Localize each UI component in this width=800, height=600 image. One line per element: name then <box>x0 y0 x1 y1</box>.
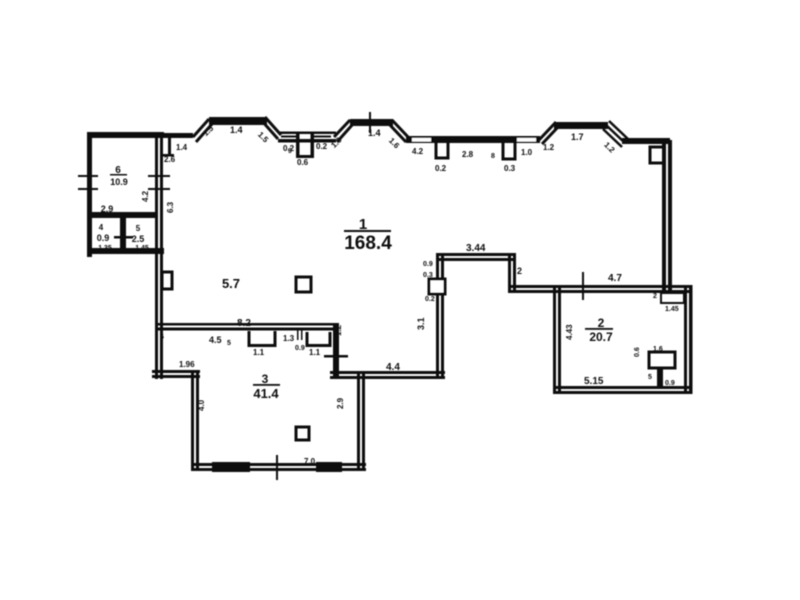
svg-text:41.4: 41.4 <box>253 386 279 401</box>
svg-text:4.7: 4.7 <box>608 273 622 284</box>
svg-text:1.45: 1.45 <box>135 245 149 252</box>
svg-text:2.8: 2.8 <box>462 150 474 159</box>
svg-text:1.7: 1.7 <box>571 132 584 142</box>
svg-text:0.3: 0.3 <box>504 164 516 173</box>
svg-text:2.5: 2.5 <box>132 234 145 244</box>
svg-text:5.15: 5.15 <box>584 376 604 387</box>
svg-text:8.2: 8.2 <box>237 318 251 329</box>
svg-text:1.6: 1.6 <box>653 346 663 353</box>
svg-text:8: 8 <box>491 153 495 160</box>
svg-text:9: 9 <box>288 148 292 155</box>
svg-text:0.9: 0.9 <box>665 380 675 387</box>
svg-text:4.43: 4.43 <box>565 324 574 340</box>
svg-text:1.4: 1.4 <box>230 125 243 135</box>
svg-text:1.35: 1.35 <box>98 245 112 252</box>
svg-text:0.6: 0.6 <box>634 347 641 357</box>
svg-text:1.2: 1.2 <box>334 324 343 336</box>
svg-text:4.2: 4.2 <box>141 190 150 202</box>
svg-text:168.4: 168.4 <box>344 233 392 254</box>
svg-text:0.9: 0.9 <box>97 233 110 243</box>
svg-text:4.0: 4.0 <box>197 399 206 411</box>
svg-text:1.4: 1.4 <box>176 143 188 152</box>
svg-text:2.9: 2.9 <box>101 204 114 214</box>
svg-text:2: 2 <box>598 316 605 330</box>
svg-text:7.0: 7.0 <box>304 457 316 466</box>
svg-text:2: 2 <box>517 266 522 276</box>
svg-text:5: 5 <box>160 334 164 341</box>
svg-text:1.2: 1.2 <box>543 143 555 152</box>
svg-text:20.7: 20.7 <box>589 330 613 344</box>
svg-text:5: 5 <box>648 374 652 381</box>
svg-text:1.4: 1.4 <box>368 128 381 138</box>
svg-text:1.0: 1.0 <box>521 148 533 157</box>
svg-text:0.9: 0.9 <box>423 261 433 268</box>
svg-text:0.2: 0.2 <box>425 296 435 303</box>
svg-text:1.1: 1.1 <box>309 348 321 357</box>
svg-text:0.2: 0.2 <box>316 142 328 151</box>
svg-text:5.7: 5.7 <box>222 276 240 291</box>
svg-text:0.6: 0.6 <box>297 158 309 167</box>
svg-text:5: 5 <box>136 224 141 233</box>
svg-text:5: 5 <box>227 340 231 347</box>
svg-text:1.1: 1.1 <box>253 348 265 357</box>
svg-text:6.3: 6.3 <box>166 201 175 213</box>
svg-text:0.9: 0.9 <box>295 345 305 352</box>
svg-text:0.3: 0.3 <box>423 272 433 279</box>
svg-text:2: 2 <box>653 293 657 300</box>
svg-text:10.9: 10.9 <box>110 177 128 187</box>
svg-text:3.44: 3.44 <box>466 243 486 254</box>
svg-text:1.3: 1.3 <box>283 334 295 343</box>
svg-text:4.2: 4.2 <box>412 147 424 156</box>
svg-text:1.96: 1.96 <box>179 360 195 369</box>
svg-text:0.2: 0.2 <box>435 164 447 173</box>
svg-text:4.4: 4.4 <box>386 362 400 373</box>
svg-text:4.5: 4.5 <box>209 335 222 345</box>
svg-text:2.9: 2.9 <box>336 397 345 409</box>
svg-text:3: 3 <box>262 372 269 386</box>
svg-text:3.1: 3.1 <box>416 317 426 330</box>
svg-text:2.6: 2.6 <box>164 155 176 164</box>
svg-text:4: 4 <box>99 223 104 232</box>
svg-text:1.45: 1.45 <box>665 306 679 313</box>
